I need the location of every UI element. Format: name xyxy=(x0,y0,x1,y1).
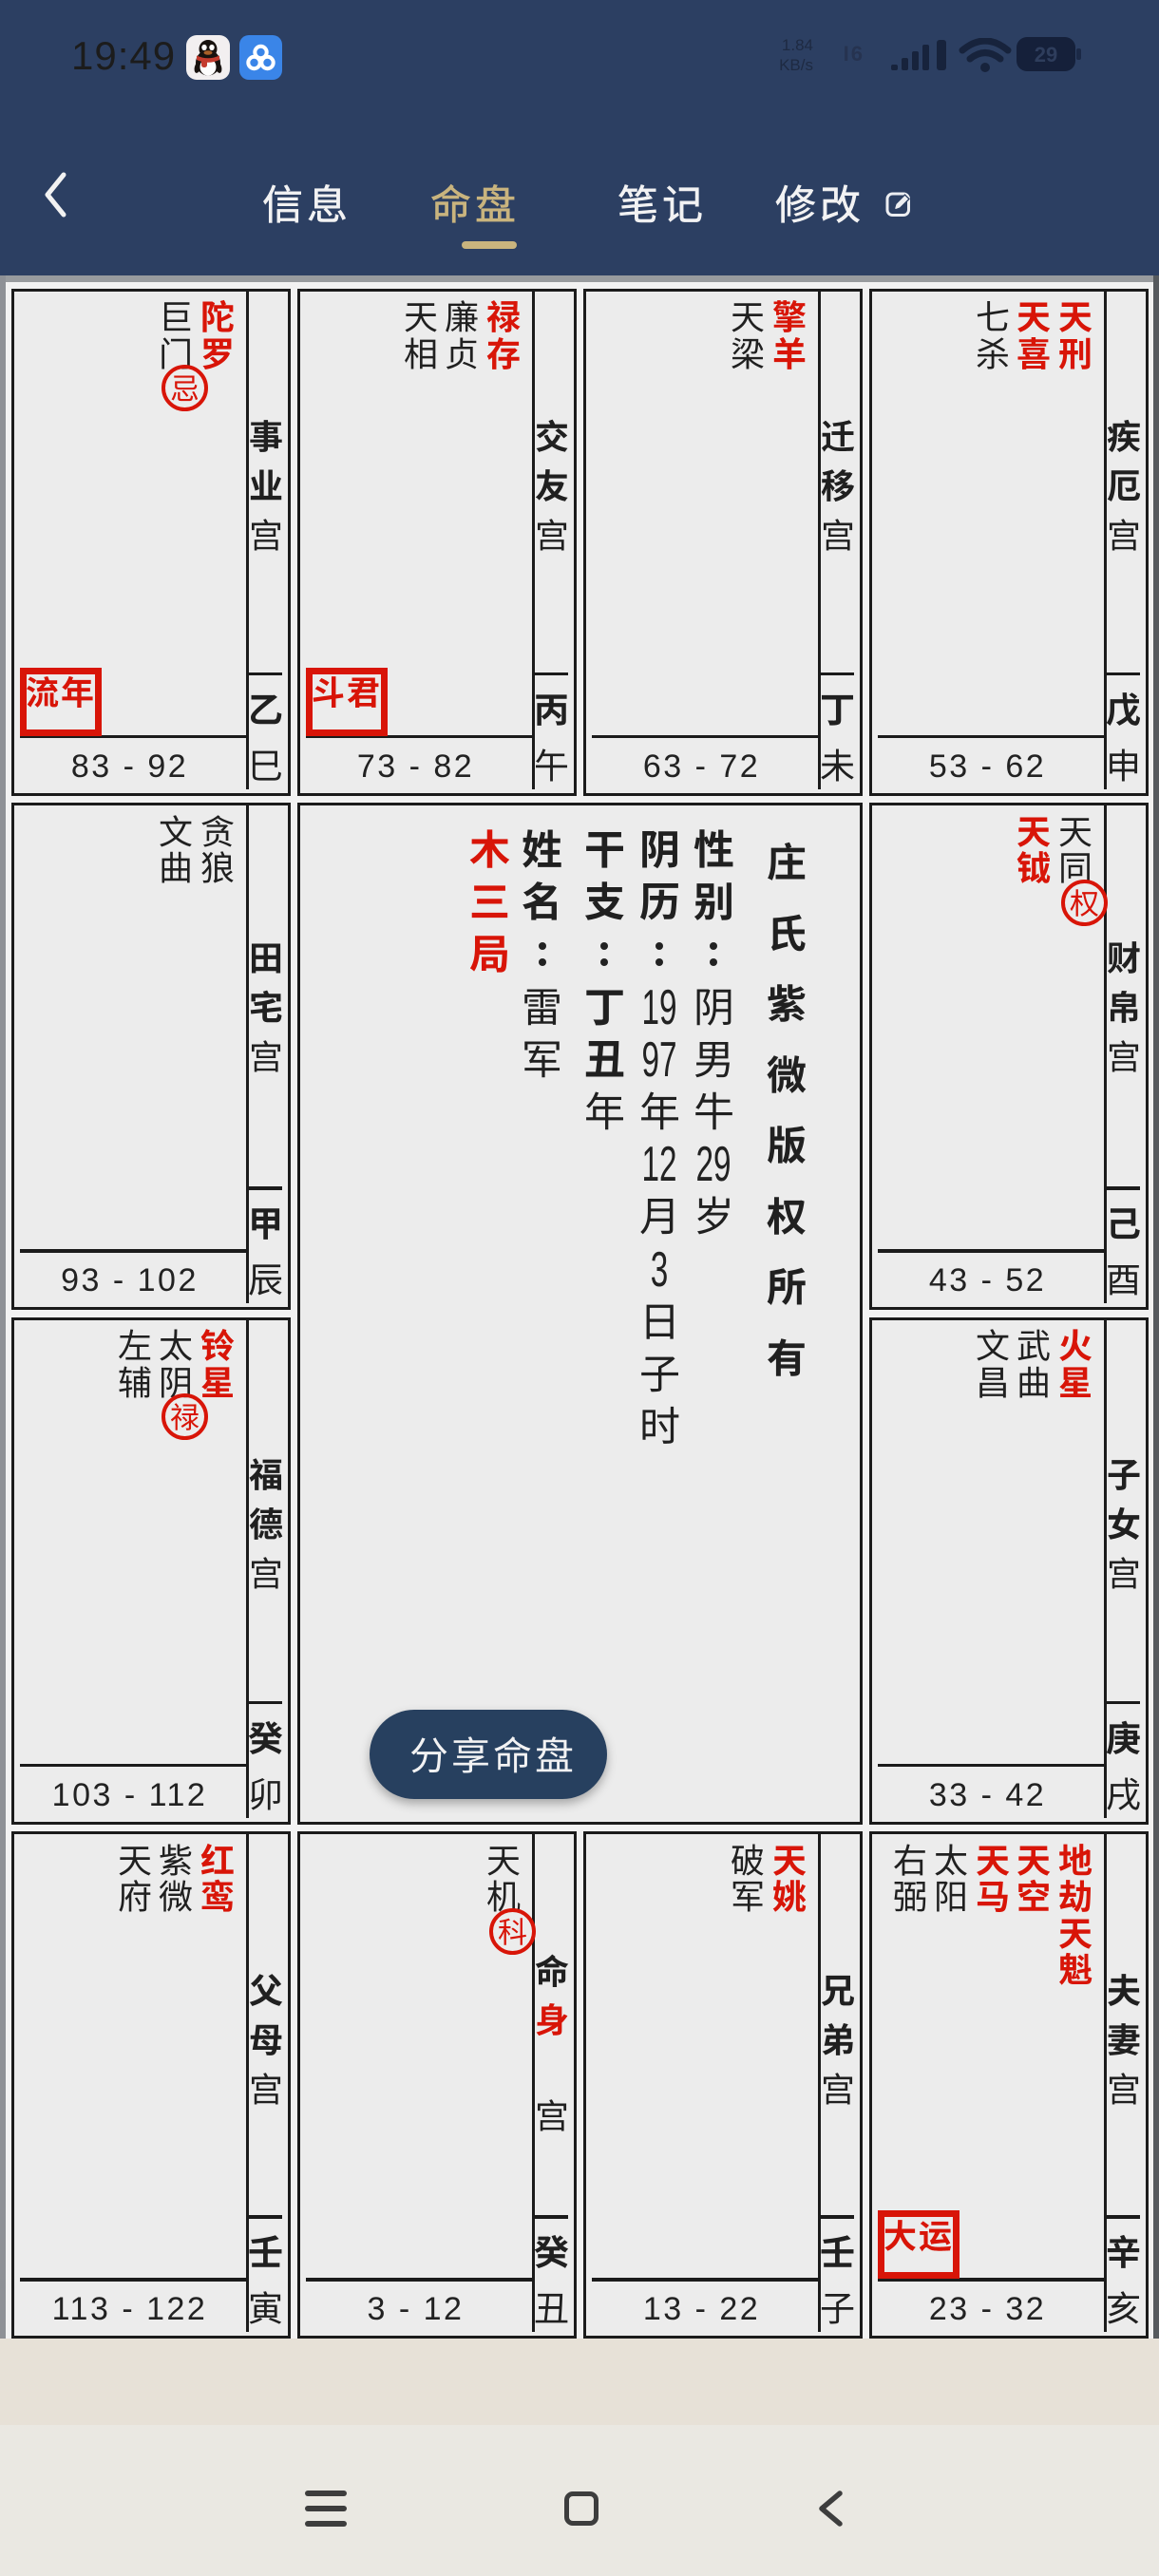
svg-text:29: 29 xyxy=(1035,43,1057,66)
